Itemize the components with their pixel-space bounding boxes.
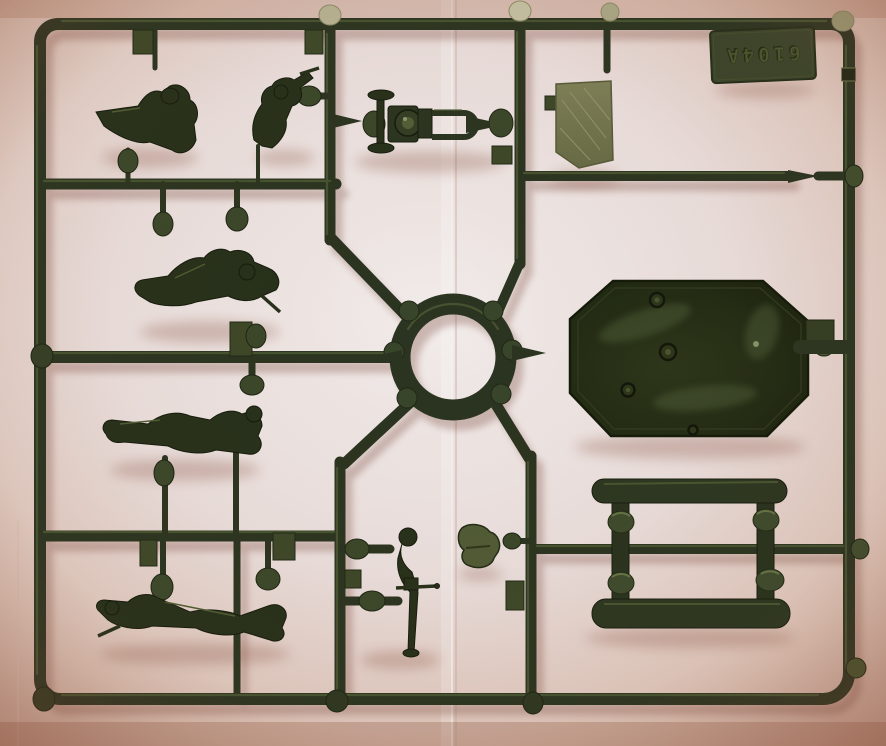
- vignette-overlay: [0, 0, 886, 746]
- sprue-photo: 6104A 6104A: [0, 0, 886, 746]
